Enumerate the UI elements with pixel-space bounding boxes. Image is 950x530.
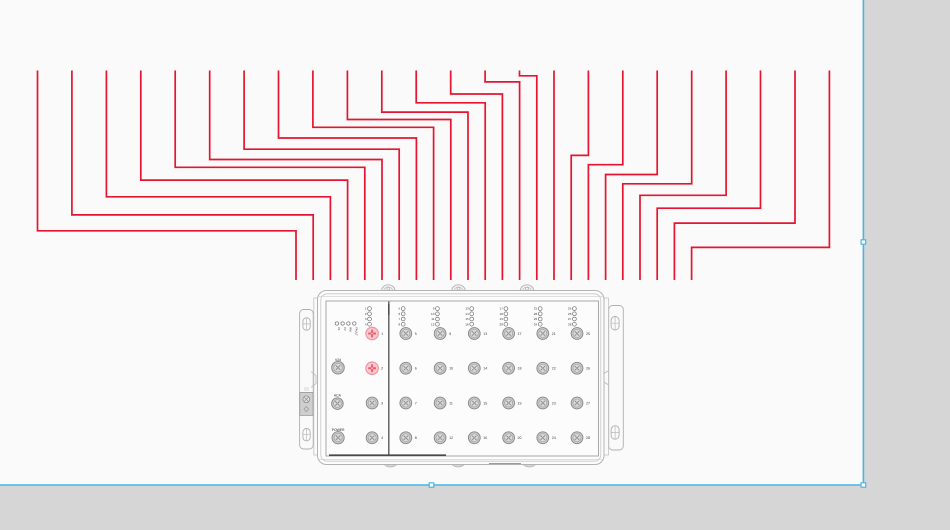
svg-text:17: 17 [518, 332, 522, 336]
svg-text:14: 14 [465, 312, 469, 316]
svg-text:28: 28 [586, 436, 590, 440]
svg-text:27: 27 [586, 401, 590, 405]
svg-text:28: 28 [568, 322, 572, 326]
svg-text:19: 19 [500, 317, 504, 321]
svg-text:8: 8 [415, 436, 417, 440]
svg-text:1: 1 [381, 332, 383, 336]
svg-text:RM: RM [349, 327, 353, 332]
svg-text:7: 7 [415, 401, 417, 405]
svg-text:14: 14 [483, 367, 487, 371]
svg-text:27: 27 [568, 317, 572, 321]
svg-text:21: 21 [534, 307, 538, 311]
svg-text:P2: P2 [343, 327, 347, 331]
svg-text:FAULT: FAULT [355, 327, 359, 336]
svg-text:10: 10 [449, 367, 453, 371]
svg-text:12: 12 [431, 322, 435, 326]
svg-text:18: 18 [500, 312, 504, 316]
svg-text:25: 25 [568, 307, 572, 311]
svg-text:20: 20 [500, 322, 504, 326]
svg-text:11: 11 [449, 401, 453, 405]
svg-text:24: 24 [534, 322, 538, 326]
svg-text:22: 22 [534, 312, 538, 316]
svg-text:11: 11 [431, 317, 434, 321]
svg-text:ACA: ACA [334, 394, 342, 398]
svg-text:V24: V24 [335, 358, 341, 362]
svg-text:23: 23 [552, 401, 556, 405]
svg-text:12: 12 [449, 436, 453, 440]
svg-text:2: 2 [381, 367, 383, 371]
svg-text:21: 21 [552, 332, 556, 336]
svg-text:5: 5 [415, 332, 417, 336]
svg-text:3: 3 [381, 401, 383, 405]
svg-text:P1: P1 [337, 327, 341, 331]
svg-text:13: 13 [483, 332, 487, 336]
svg-text:4: 4 [381, 436, 383, 440]
svg-text:POWER: POWER [332, 428, 345, 432]
svg-text:6: 6 [415, 367, 417, 371]
svg-text:24: 24 [552, 436, 556, 440]
svg-text:18: 18 [518, 367, 522, 371]
svg-text:10: 10 [431, 312, 435, 316]
svg-text:26: 26 [586, 367, 590, 371]
svg-text:23: 23 [534, 317, 538, 321]
svg-text:17: 17 [500, 307, 504, 311]
svg-text:16: 16 [483, 436, 487, 440]
svg-text:13: 13 [465, 307, 469, 311]
svg-text:25: 25 [586, 332, 590, 336]
svg-text:15: 15 [483, 401, 487, 405]
svg-text:15: 15 [465, 317, 469, 321]
svg-text:16: 16 [465, 322, 469, 326]
svg-text:9: 9 [449, 332, 451, 336]
svg-text:26: 26 [568, 312, 572, 316]
svg-text:20: 20 [518, 436, 522, 440]
svg-text:19: 19 [518, 401, 522, 405]
svg-text:22: 22 [552, 367, 556, 371]
